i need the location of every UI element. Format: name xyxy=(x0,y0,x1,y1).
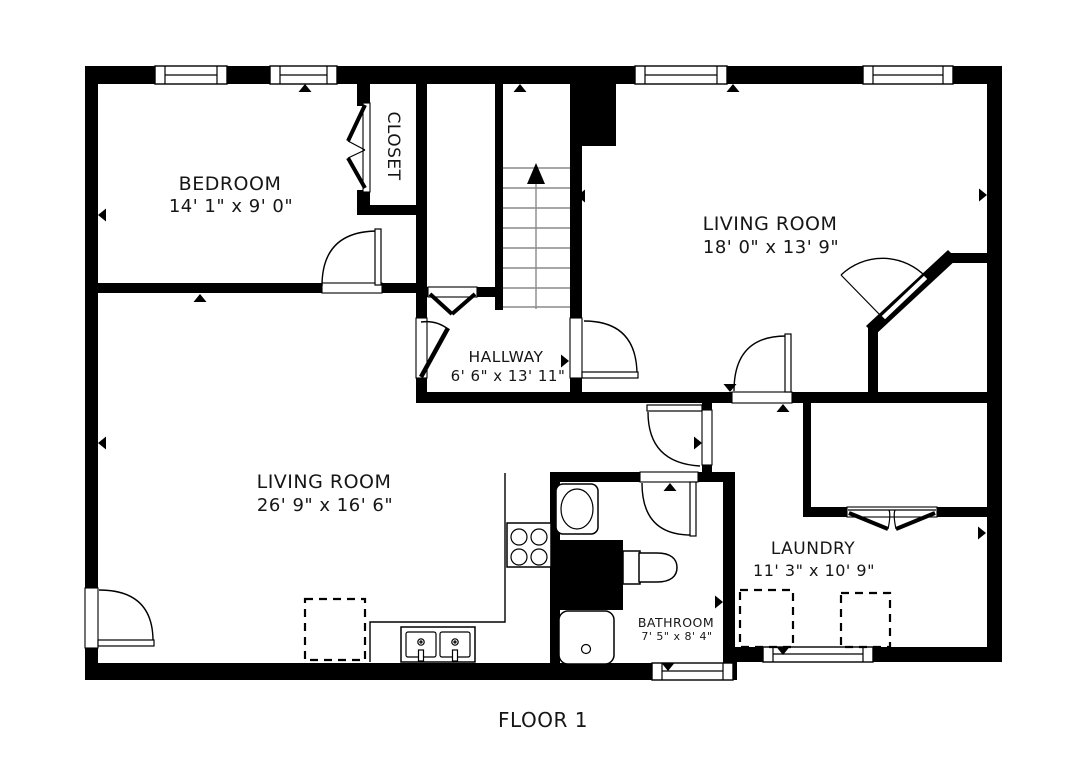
stairs-up-arrow-icon xyxy=(527,163,545,184)
laundry-appliances xyxy=(740,590,890,647)
bathroom-dimensions: 7' 5" x 8' 4" xyxy=(641,630,712,643)
door-living-laundry xyxy=(734,334,791,392)
opening-bedroom xyxy=(322,283,382,293)
window xyxy=(635,66,727,84)
toilet-icon xyxy=(623,551,677,584)
opening-corridor-closet xyxy=(428,287,477,297)
staircase xyxy=(503,163,570,309)
bedroom-label: BEDROOM xyxy=(179,173,282,195)
opening-bathroom xyxy=(640,472,698,482)
bathroom-sink-icon xyxy=(556,484,598,534)
door-side-entry xyxy=(98,590,154,646)
door-kitchen-laundry xyxy=(647,405,702,466)
living-room-bottom-dimensions: 26' 9" x 16' 6" xyxy=(257,495,393,516)
living-room-bottom-label: LIVING ROOM xyxy=(257,471,392,493)
laundry-label: LAUNDRY xyxy=(771,539,855,559)
floor-plan-canvas: BEDROOM 14' 1" x 9' 0" CLOSET LIVING ROO… xyxy=(0,0,1086,768)
wall-laundry-closet-left xyxy=(803,403,811,517)
floor-plan: BEDROOM 14' 1" x 9' 0" CLOSET LIVING ROO… xyxy=(0,0,1086,768)
wall-closet-bottom xyxy=(357,205,427,215)
wall-exterior-right xyxy=(987,66,1002,662)
wall-exterior-left xyxy=(85,66,98,679)
stove-icon xyxy=(507,523,551,567)
wall-vestibule-left xyxy=(868,325,878,392)
opening-kitchen-laundry xyxy=(702,410,712,465)
bifold-doors xyxy=(348,105,936,529)
washer-dashed-placeholder xyxy=(740,590,793,647)
opening-living-laundry xyxy=(732,392,792,403)
door-hallway-living xyxy=(582,321,638,378)
wall-bathroom-right xyxy=(723,472,735,663)
vanity-block xyxy=(552,540,623,610)
room-labels: BEDROOM 14' 1" x 9' 0" CLOSET LIVING ROO… xyxy=(169,111,875,732)
living-room-top-dimensions: 18' 0" x 13' 9" xyxy=(703,237,839,258)
bathroom-label: BATHROOM xyxy=(638,615,714,630)
opening-hallway-living-top xyxy=(570,318,582,378)
window xyxy=(863,66,953,84)
floor-caption: FLOOR 1 xyxy=(498,708,588,732)
laundry-dimensions: 11' 3" x 10' 9" xyxy=(753,561,875,580)
kitchen-double-sink-icon xyxy=(401,627,475,662)
shower-icon xyxy=(559,611,614,664)
opening-side-entry xyxy=(85,588,98,648)
closet-label: CLOSET xyxy=(383,111,403,180)
door-bedroom xyxy=(322,229,381,286)
window xyxy=(155,66,227,84)
wall-chimney-mass xyxy=(580,84,616,146)
dryer-dashed-placeholder xyxy=(841,593,890,647)
wall-corridor-right xyxy=(495,84,503,310)
opening-bedroom-closet xyxy=(363,103,370,192)
appliance-dashed-placeholder xyxy=(305,599,365,660)
hallway-label: HALLWAY xyxy=(469,348,544,366)
window xyxy=(270,66,337,84)
wall-exterior-bottom-main xyxy=(85,663,737,680)
bedroom-dimensions: 14' 1" x 9' 0" xyxy=(169,196,293,217)
opening-laundry-closet xyxy=(847,507,937,517)
living-room-top-label: LIVING ROOM xyxy=(703,213,838,235)
hallway-dimensions: 6' 6" x 13' 11" xyxy=(451,367,566,385)
